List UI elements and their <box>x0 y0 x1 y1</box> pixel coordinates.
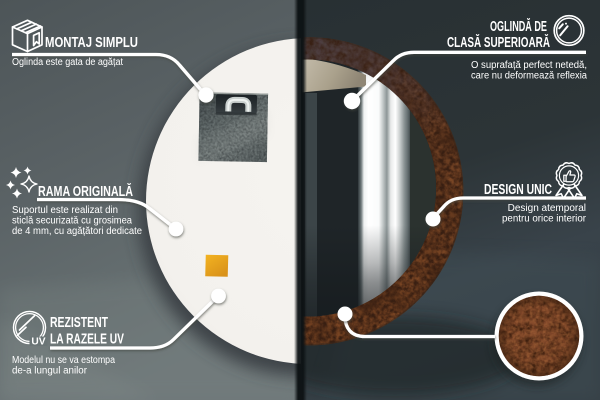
svg-text:DESIGN UNIC: DESIGN UNIC <box>484 181 552 198</box>
svg-text:sticlă securizată cu grosimea: sticlă securizată cu grosimea <box>12 216 132 227</box>
svg-text:Oglinda este gata de agățat: Oglinda este gata de agățat <box>12 57 123 68</box>
svg-text:de 4 mm, cu agățători dedicate: de 4 mm, cu agățători dedicate <box>12 226 142 237</box>
svg-text:care nu deformează reflexia: care nu deformează reflexia <box>471 70 587 81</box>
svg-text:OGLINDĂ DE: OGLINDĂ DE <box>490 18 547 35</box>
svg-text:MONTAJ SIMPLU: MONTAJ SIMPLU <box>45 34 138 51</box>
svg-text:Suportul este realizat din: Suportul este realizat din <box>12 205 118 216</box>
svg-text:de-a lungul anilor: de-a lungul anilor <box>12 365 88 376</box>
svg-text:LA RAZELE UV: LA RAZELE UV <box>50 331 125 348</box>
svg-text:REZISTENT: REZISTENT <box>50 314 108 331</box>
svg-text:O suprafață perfect netedă,: O suprafață perfect netedă, <box>471 60 587 71</box>
svg-text:Design atemporal: Design atemporal <box>508 203 586 214</box>
svg-text:pentru orice interior: pentru orice interior <box>502 213 587 224</box>
svg-text:CLASĂ SUPERIOARĂ: CLASĂ SUPERIOARĂ <box>447 34 550 51</box>
svg-text:Modelul nu se va estompa: Modelul nu se va estompa <box>12 355 115 366</box>
svg-text:UV: UV <box>31 336 45 347</box>
svg-text:RAMA ORIGINALĂ: RAMA ORIGINALĂ <box>38 183 133 200</box>
